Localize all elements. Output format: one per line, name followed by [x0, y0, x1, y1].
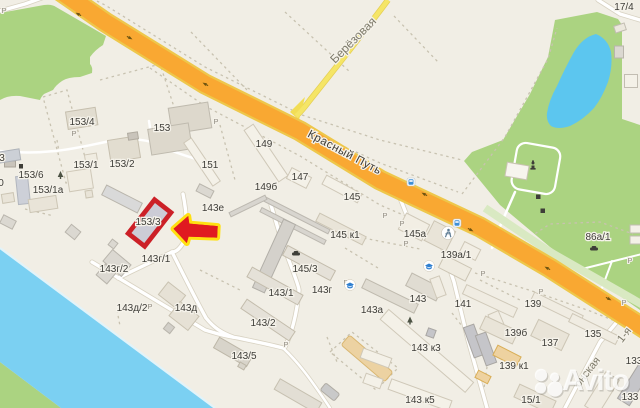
svg-text:153/2: 153/2 [109, 159, 134, 170]
svg-text:143а: 143а [361, 305, 384, 316]
svg-text:143: 143 [410, 294, 427, 305]
svg-text:17/4: 17/4 [614, 2, 634, 13]
svg-text:153/1: 153/1 [73, 160, 98, 171]
svg-text:P: P [403, 239, 408, 248]
svg-text:P: P [71, 129, 76, 138]
svg-text:153: 153 [154, 123, 171, 134]
svg-text:143/5: 143/5 [231, 351, 256, 362]
svg-text:143 к5: 143 к5 [405, 395, 435, 406]
svg-text:143г/1: 143г/1 [142, 254, 171, 265]
svg-text:139 к1: 139 к1 [499, 361, 529, 372]
svg-text:P: P [627, 256, 632, 265]
svg-text:135: 135 [585, 329, 602, 340]
svg-text:143/1: 143/1 [268, 288, 293, 299]
svg-text:145: 145 [344, 192, 361, 203]
svg-text:139б: 139б [505, 327, 528, 339]
svg-text:P: P [399, 219, 404, 228]
svg-text:139а/1: 139а/1 [441, 250, 472, 261]
svg-text:143г: 143г [312, 285, 333, 296]
svg-text:P: P [147, 302, 152, 311]
svg-text:0: 0 [0, 178, 4, 189]
svg-text:P: P [621, 298, 626, 307]
svg-text:P: P [1, 6, 6, 15]
svg-text:143г/2: 143г/2 [100, 264, 129, 275]
svg-text:P: P [213, 117, 218, 126]
svg-text:147: 147 [292, 172, 309, 183]
svg-text:143д: 143д [175, 303, 198, 314]
svg-text:137: 137 [542, 338, 559, 349]
svg-text:Avito: Avito [562, 364, 630, 397]
svg-text:P: P [283, 340, 288, 349]
svg-text:P: P [382, 211, 387, 220]
svg-text:143 к3: 143 к3 [411, 343, 441, 354]
svg-text:143е: 143е [202, 203, 225, 214]
svg-text:153/1а: 153/1а [33, 185, 64, 196]
svg-text:141: 141 [455, 299, 472, 310]
svg-text:145/3: 145/3 [292, 264, 317, 275]
svg-text:P: P [538, 287, 543, 296]
svg-text:P: P [480, 269, 485, 278]
svg-text:145 к1: 145 к1 [330, 230, 360, 241]
svg-text:86а/1: 86а/1 [585, 232, 610, 243]
svg-text:139: 139 [525, 299, 542, 310]
svg-text:149: 149 [256, 139, 273, 150]
svg-text:143д/2: 143д/2 [117, 303, 148, 314]
svg-text:149б: 149б [255, 181, 278, 193]
svg-text:143/2: 143/2 [250, 318, 275, 329]
svg-text:153/6: 153/6 [18, 170, 43, 181]
svg-text:15/1: 15/1 [521, 395, 541, 406]
svg-text:153/3: 153/3 [135, 217, 160, 228]
svg-text:151: 151 [202, 160, 219, 171]
svg-text:153/4: 153/4 [69, 117, 94, 128]
svg-text:3: 3 [0, 153, 5, 164]
